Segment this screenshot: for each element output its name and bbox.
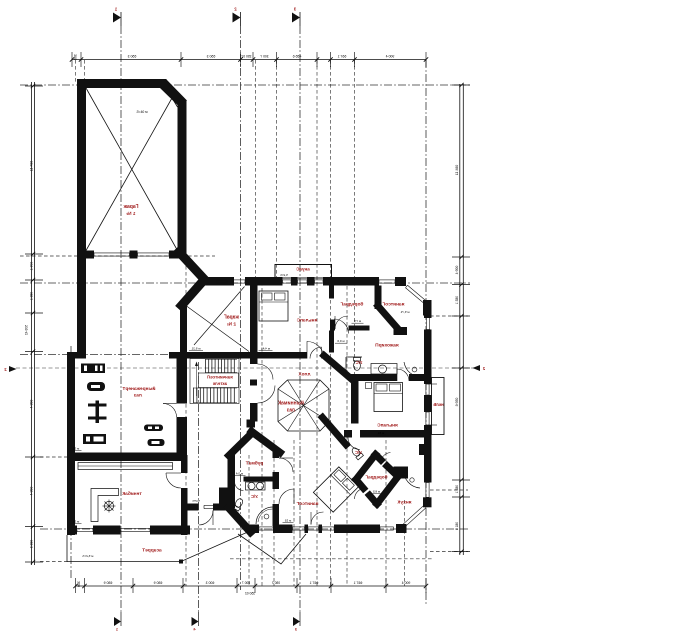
svg-text:2 №: 2 № [227, 322, 236, 327]
svg-text:У/С: У/С [251, 494, 258, 499]
svg-text:яанитсоГ: яанитсоГ [382, 302, 404, 308]
svg-text:081 5: 081 5 [455, 522, 459, 530]
svg-text:650 3: 650 3 [128, 55, 137, 59]
svg-text:509 42: 509 42 [25, 325, 29, 335]
svg-text:900 4: 900 4 [386, 55, 395, 59]
svg-text:нклБ: нклБ [433, 402, 443, 407]
svg-text:м 8,5: м 8,5 [373, 490, 381, 494]
svg-text:асарреТ: асарреТ [142, 548, 162, 554]
svg-text:050 2: 050 2 [272, 581, 280, 585]
svg-text:йыннимаК: йыннимаК [277, 400, 304, 407]
svg-text:м 5,71: м 5,71 [400, 310, 409, 314]
svg-text:667 1: 667 1 [354, 581, 363, 585]
svg-text:350 02: 350 02 [241, 55, 251, 59]
svg-text:083 1: 083 1 [30, 292, 34, 300]
svg-text:У/С: У/С [356, 360, 363, 365]
svg-text:Гараж: Гараж [123, 204, 138, 210]
svg-text:м 92: м 92 [73, 447, 80, 451]
svg-text:300: 300 [77, 581, 81, 587]
svg-text:083 3: 083 3 [30, 540, 34, 549]
svg-text:5,2=h: 5,2=h [280, 273, 288, 277]
svg-text:яанитсоГ: яанитсоГ [296, 501, 318, 507]
svg-text:009 4: 009 4 [30, 487, 34, 496]
svg-text:м 53: м 53 [285, 519, 292, 523]
svg-text:083 1: 083 1 [455, 296, 459, 304]
svg-text:м 6,9: м 6,9 [337, 339, 345, 343]
svg-text:650 3: 650 3 [207, 55, 216, 59]
svg-text:059 6: 059 6 [455, 398, 459, 407]
svg-text:900 4: 900 4 [402, 581, 411, 585]
svg-text:084 11: 084 11 [30, 161, 34, 171]
svg-text:667 1: 667 1 [338, 55, 347, 59]
svg-text:йынрежанерТ: йынрежанерТ [122, 385, 155, 392]
svg-text:800 7: 800 7 [242, 581, 250, 585]
svg-text:яньлапС: яньлапС [296, 318, 317, 324]
svg-text:м 3,4: м 3,4 [236, 472, 244, 476]
svg-text:650 9: 650 9 [154, 581, 163, 585]
svg-text:667 1: 667 1 [310, 581, 319, 585]
svg-text:м 51: м 51 [73, 520, 80, 524]
svg-text:м 9,21: м 9,21 [191, 347, 200, 351]
svg-text:650 9: 650 9 [104, 581, 113, 585]
svg-text:тенибаК: тенибаК [122, 490, 141, 497]
svg-text:янхуК: янхуК [397, 500, 411, 506]
svg-text:1 №: 1 № [127, 211, 136, 216]
svg-text:350 02: 350 02 [245, 592, 255, 596]
svg-text:лаз: лаз [286, 408, 295, 414]
svg-text:465 6: 465 6 [293, 55, 302, 59]
svg-text:300: 300 [74, 54, 78, 60]
svg-text:ксупс: ксупс [192, 499, 200, 503]
svg-text:яньлапС: яньлапС [377, 423, 398, 429]
svg-text:083 1: 083 1 [455, 485, 459, 493]
svg-text:м 7,5: м 7,5 [354, 319, 362, 323]
svg-text:009 4: 009 4 [455, 266, 459, 275]
svg-text:м 04=S: м 04=S [136, 110, 148, 114]
svg-text:рубмаТ: рубмаТ [246, 460, 264, 467]
svg-text:яанчинтсеЛ: яанчинтсеЛ [207, 375, 233, 380]
svg-text:У/С: У/С [355, 450, 362, 455]
svg-text:м 4,41: м 4,41 [261, 347, 270, 351]
svg-text:лаз: лаз [133, 394, 142, 399]
svg-text:009 4: 009 4 [30, 400, 34, 409]
svg-text:084 11: 084 11 [455, 165, 459, 175]
svg-text:актелк: актелк [212, 381, 227, 386]
svg-text:боредраГ: боредраГ [340, 301, 363, 308]
svg-text:м 81: м 81 [378, 431, 385, 435]
svg-text:300 7: 300 7 [260, 55, 268, 59]
svg-text:м 5,2=h: м 5,2=h [82, 554, 93, 558]
svg-text:боредраГ: боредраГ [365, 474, 387, 480]
svg-text:жараГ: жараГ [224, 315, 240, 321]
svg-text:ллоХ: ллоХ [298, 372, 311, 378]
svg-text:600 3: 600 3 [206, 581, 215, 585]
svg-text:009 1: 009 1 [30, 262, 34, 271]
svg-text:яажохирП: яажохирП [375, 343, 399, 349]
svg-text:ануаС: ануаС [295, 267, 309, 272]
